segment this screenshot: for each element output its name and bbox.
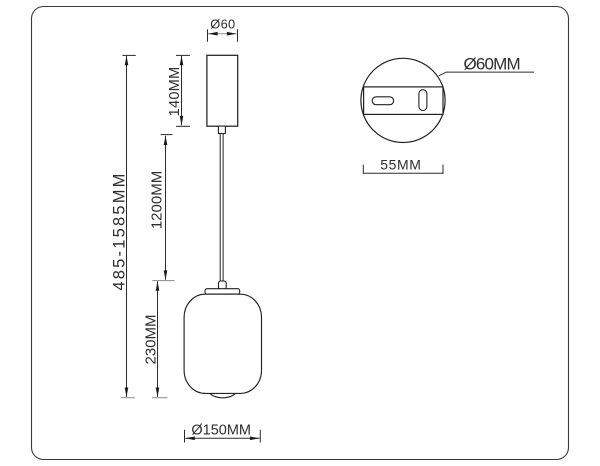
svg-text:Ø60: Ø60 <box>210 16 235 31</box>
svg-text:Ø60MM: Ø60MM <box>463 55 519 74</box>
svg-text:140MM: 140MM <box>167 66 183 116</box>
svg-text:1200MM: 1200MM <box>148 171 165 229</box>
svg-text:55MM: 55MM <box>380 156 421 172</box>
svg-text:230MM: 230MM <box>142 314 159 364</box>
svg-text:485-1585MM: 485-1585MM <box>111 171 129 290</box>
svg-text:Ø150MM: Ø150MM <box>191 423 251 439</box>
